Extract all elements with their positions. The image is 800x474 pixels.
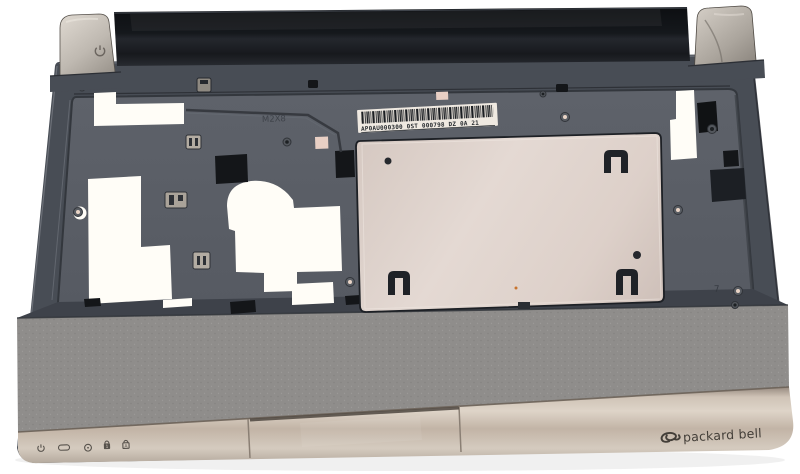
foam-pad	[710, 168, 746, 202]
top-rail-slot	[556, 84, 568, 92]
num-lock-glyph: 1	[106, 444, 109, 450]
embossed-mark-7: 7	[714, 285, 720, 295]
spring-clip	[165, 192, 187, 208]
pink-tab	[436, 92, 448, 100]
rail-slot	[84, 298, 101, 307]
embossed-mark-m2x8: M2X8	[262, 114, 286, 125]
spring-clip	[186, 135, 201, 149]
photo-canvas: 1 A packard bell	[0, 0, 800, 474]
left-tab-surface	[60, 14, 116, 82]
plate-speck	[515, 287, 518, 290]
plate-bottom-tab	[518, 302, 530, 309]
rail-clip	[197, 78, 211, 92]
pink-tab	[315, 137, 328, 149]
touchpad-metal-plate	[356, 133, 664, 312]
rail-slot	[345, 295, 361, 305]
plate-hole	[633, 251, 641, 259]
plate-hole	[385, 158, 392, 165]
foam-pad	[215, 154, 248, 184]
caps-lock-glyph: A	[124, 443, 127, 449]
left-hinge-tab	[60, 14, 116, 82]
rear-hinge-bar	[114, 7, 690, 66]
cutout-rail-block	[292, 282, 334, 305]
foam-pad	[723, 150, 739, 167]
right-tab-reflection	[714, 14, 744, 15]
spring-clip	[193, 252, 210, 269]
foam-pad	[335, 150, 355, 178]
top-rail-slot	[308, 80, 318, 88]
rail-slot	[230, 300, 256, 314]
palmrest-photo: 1 A packard bell	[0, 0, 800, 474]
